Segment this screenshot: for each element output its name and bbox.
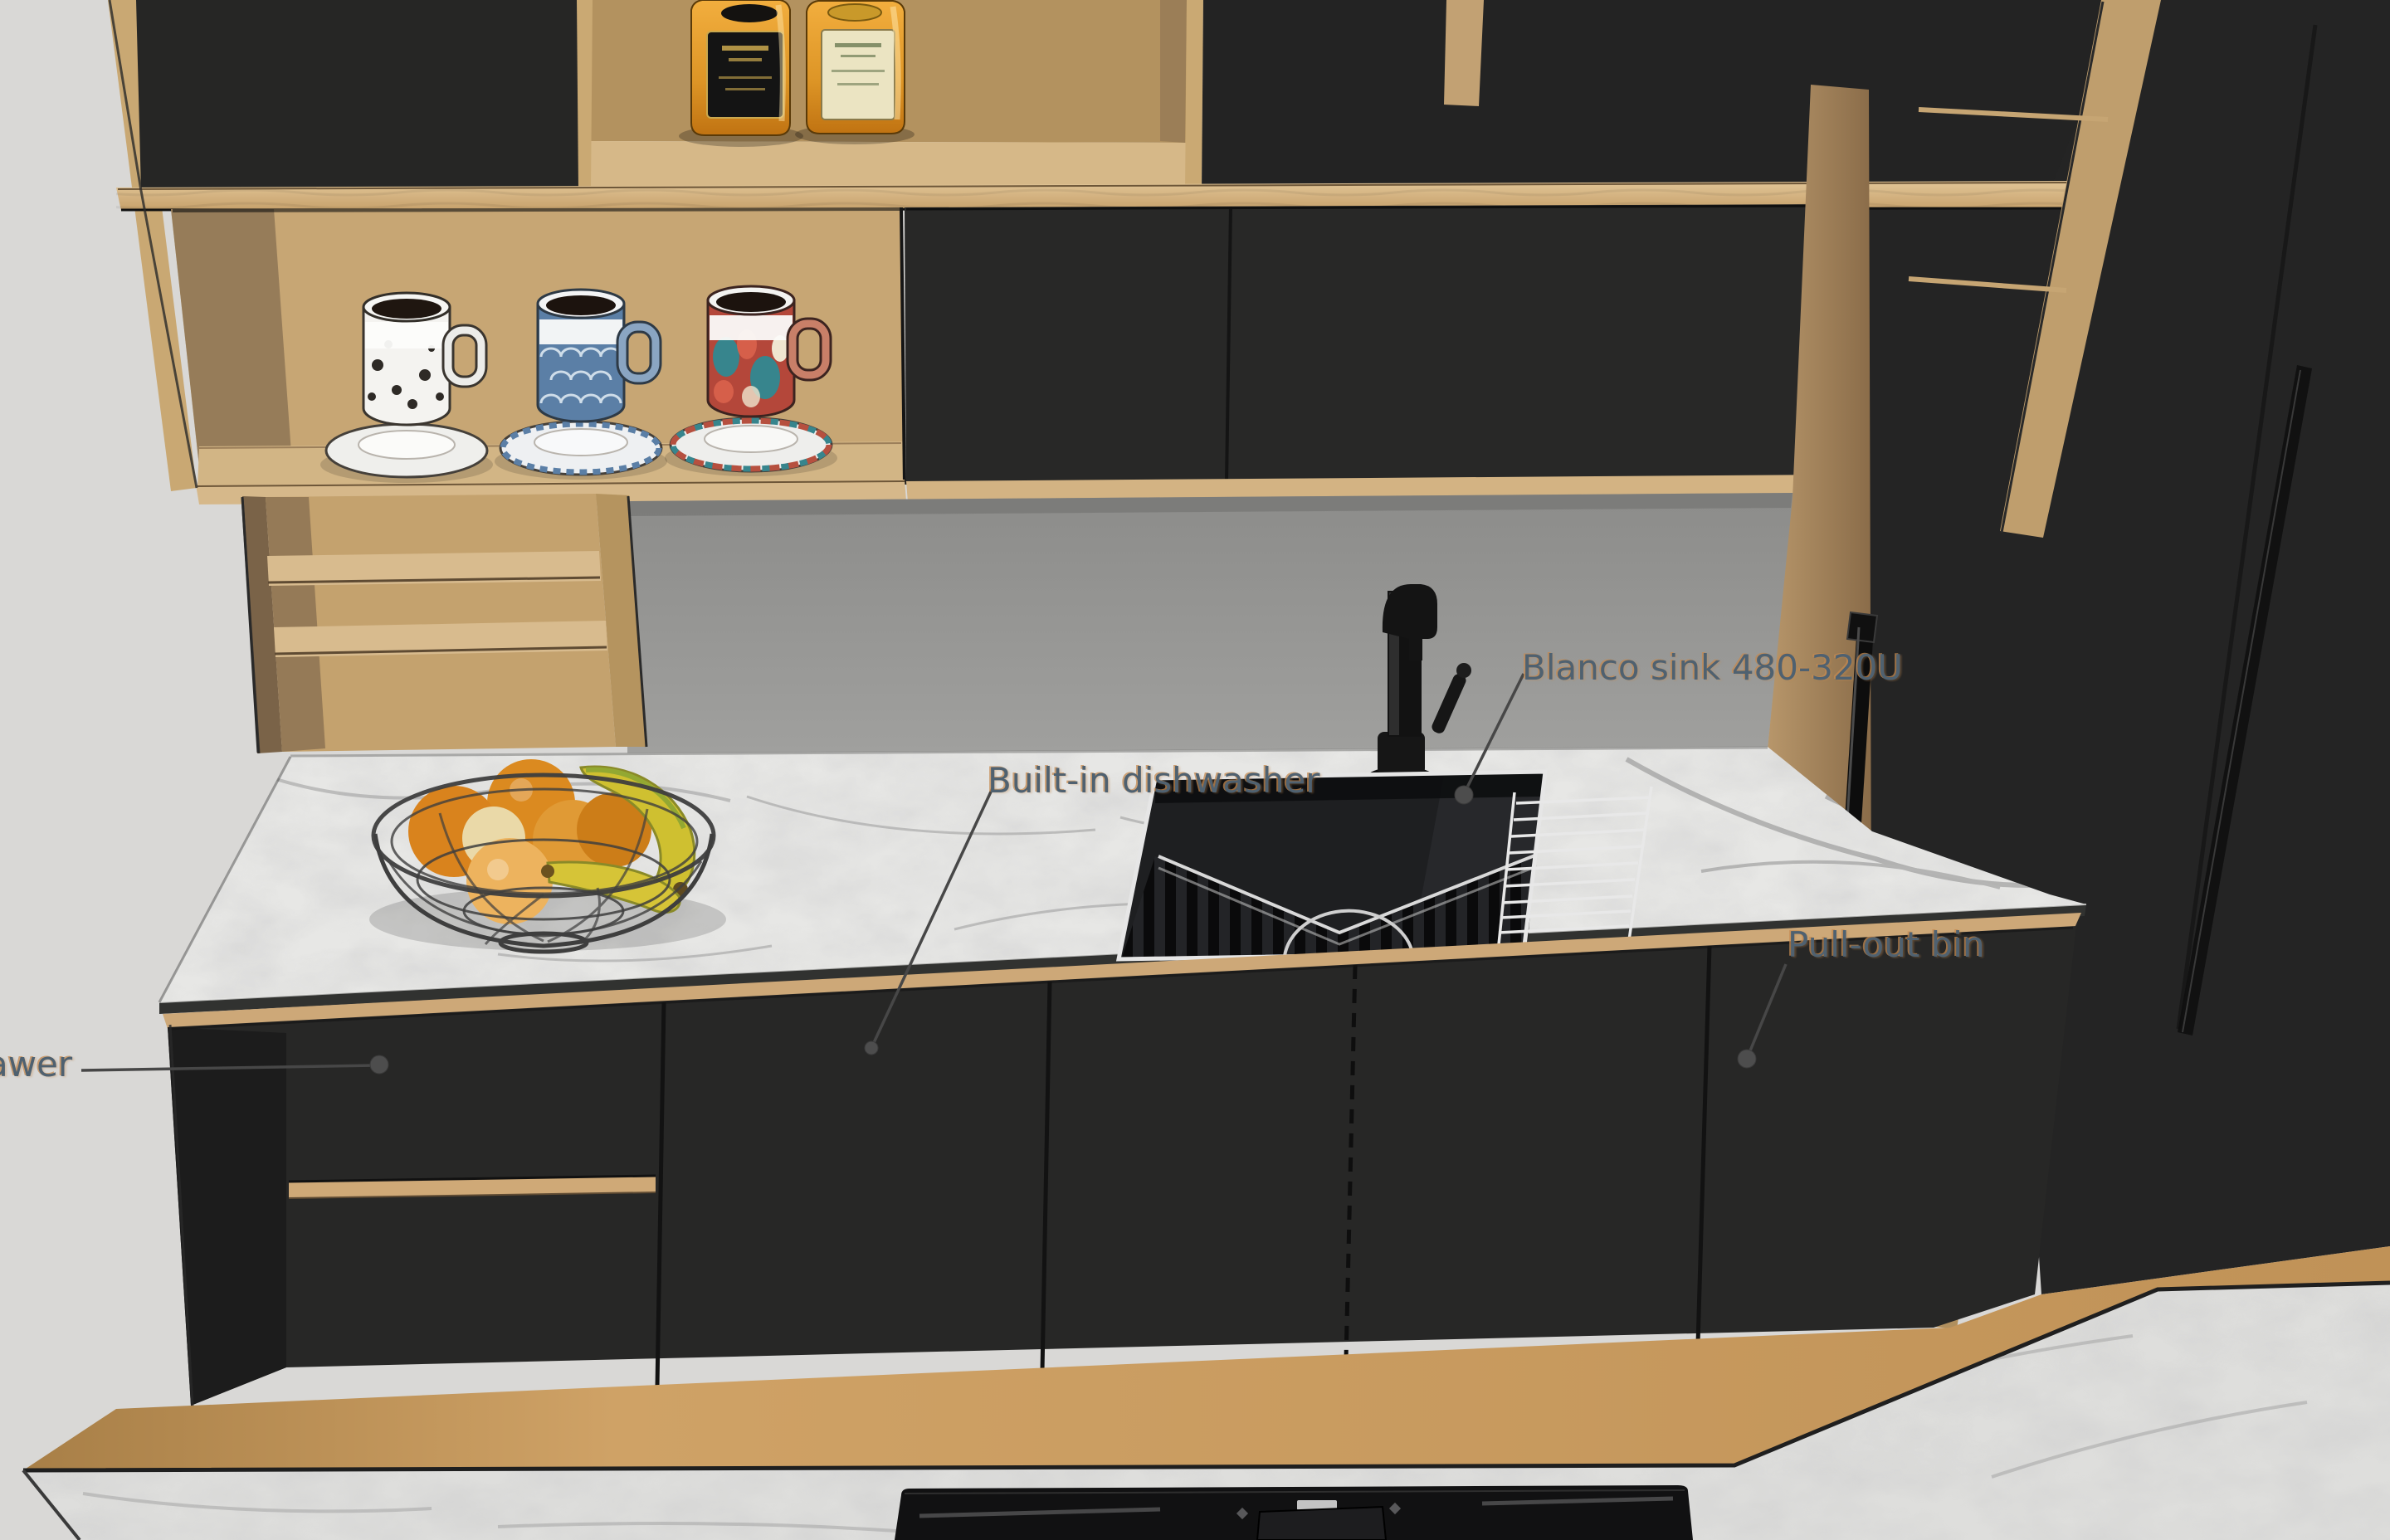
- backsplash: [627, 493, 1794, 755]
- mug-interior: [372, 299, 441, 319]
- mug-interior: [546, 295, 616, 315]
- upper-door-left[interactable]: [136, 0, 581, 191]
- mug-band: [365, 322, 448, 348]
- upper-divider-wood: [1444, 0, 1484, 106]
- label-line: [722, 46, 768, 51]
- open-shelf-unit[interactable]: [242, 494, 647, 753]
- lever-knob: [1456, 663, 1471, 678]
- mug-interior: [716, 292, 786, 312]
- annotation-bin[interactable]: Pull-out bin: [1788, 926, 1985, 964]
- cooktop[interactable]: [895, 1485, 1693, 1540]
- control-panel: [1257, 1507, 1386, 1540]
- label-line: [725, 88, 765, 90]
- shelf-shadow-line: [173, 209, 900, 211]
- annotation-sink[interactable]: Blanco sink 480-320U: [1522, 649, 1903, 687]
- mug-band: [539, 319, 622, 344]
- label-line: [837, 83, 879, 85]
- saucer-well: [358, 431, 455, 459]
- label-line: [835, 43, 881, 47]
- leader-dot-sink: [1455, 786, 1473, 804]
- faucet-base: [1378, 732, 1425, 775]
- saucer-well: [705, 426, 797, 452]
- bottle-cap: [721, 4, 778, 22]
- leader-dot-dishwasher: [865, 1041, 878, 1055]
- label-line: [729, 58, 762, 61]
- upper-doors-right[interactable]: [1202, 0, 2124, 192]
- divider-left: [577, 0, 593, 191]
- cell-shadow: [1160, 0, 1187, 143]
- label-line: [832, 70, 885, 72]
- label-line: [719, 76, 772, 79]
- leader-dot-bin: [1738, 1050, 1756, 1068]
- model-viewport: awer Built-in dishwasher Blanco sink 480…: [0, 0, 2390, 1540]
- annotation-dishwasher[interactable]: Built-in dishwasher: [988, 762, 1320, 800]
- mug-band: [710, 315, 793, 340]
- upper-doors-mid[interactable]: [905, 204, 1851, 485]
- saucer-well: [534, 429, 627, 456]
- bottle-label: [707, 32, 783, 118]
- leader-dot-drawer: [370, 1055, 388, 1074]
- annotation-drawer[interactable]: awer: [0, 1045, 72, 1084]
- divider-right: [1185, 0, 1203, 192]
- bottle-cap: [828, 4, 881, 21]
- label-line: [841, 55, 876, 57]
